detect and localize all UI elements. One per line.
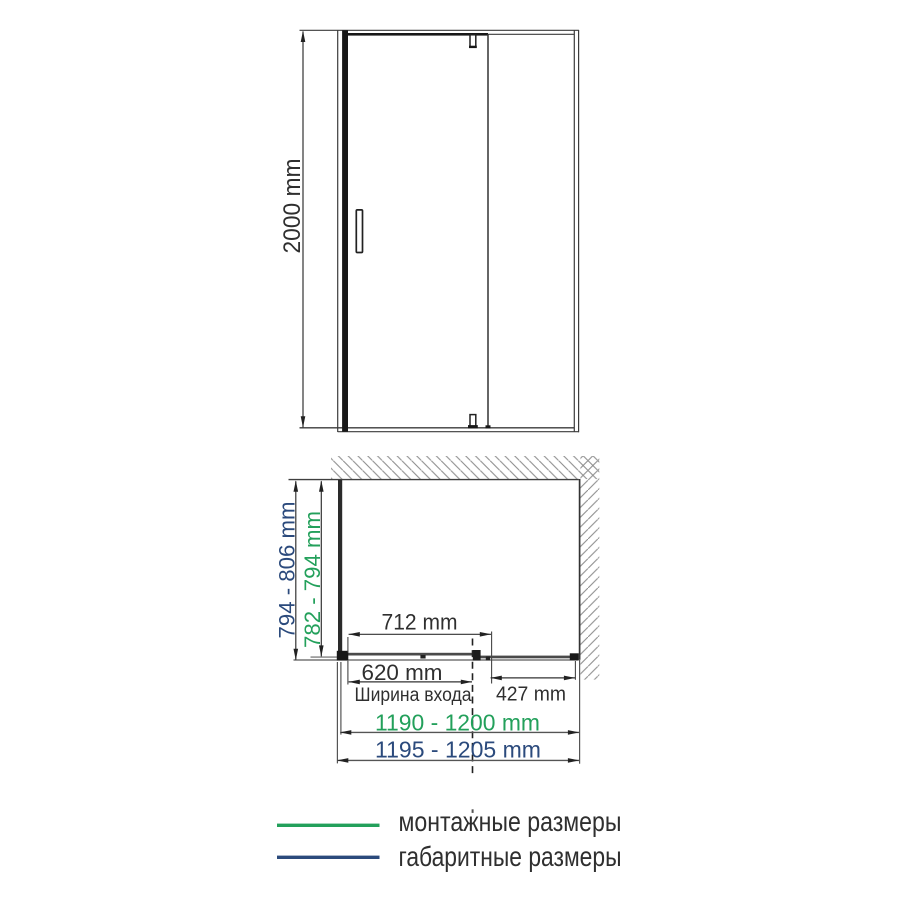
svg-text:712 mm: 712 mm [382,610,458,635]
svg-text:2000 mm: 2000 mm [279,159,306,254]
svg-text:794 - 806 mm: 794 - 806 mm [275,502,300,639]
svg-text:монтажные размеры: монтажные размеры [399,806,622,837]
svg-text:габаритные размеры: габаритные размеры [399,841,622,872]
svg-text:1195 - 1205 mm: 1195 - 1205 mm [375,736,541,762]
svg-text:427 mm: 427 mm [496,683,566,705]
svg-text:620 mm: 620 mm [362,660,443,685]
svg-text:1190 - 1200 mm: 1190 - 1200 mm [375,710,540,736]
svg-text:Ширина входа: Ширина входа [355,685,472,706]
svg-text:782 - 794 mm: 782 - 794 mm [300,511,325,648]
